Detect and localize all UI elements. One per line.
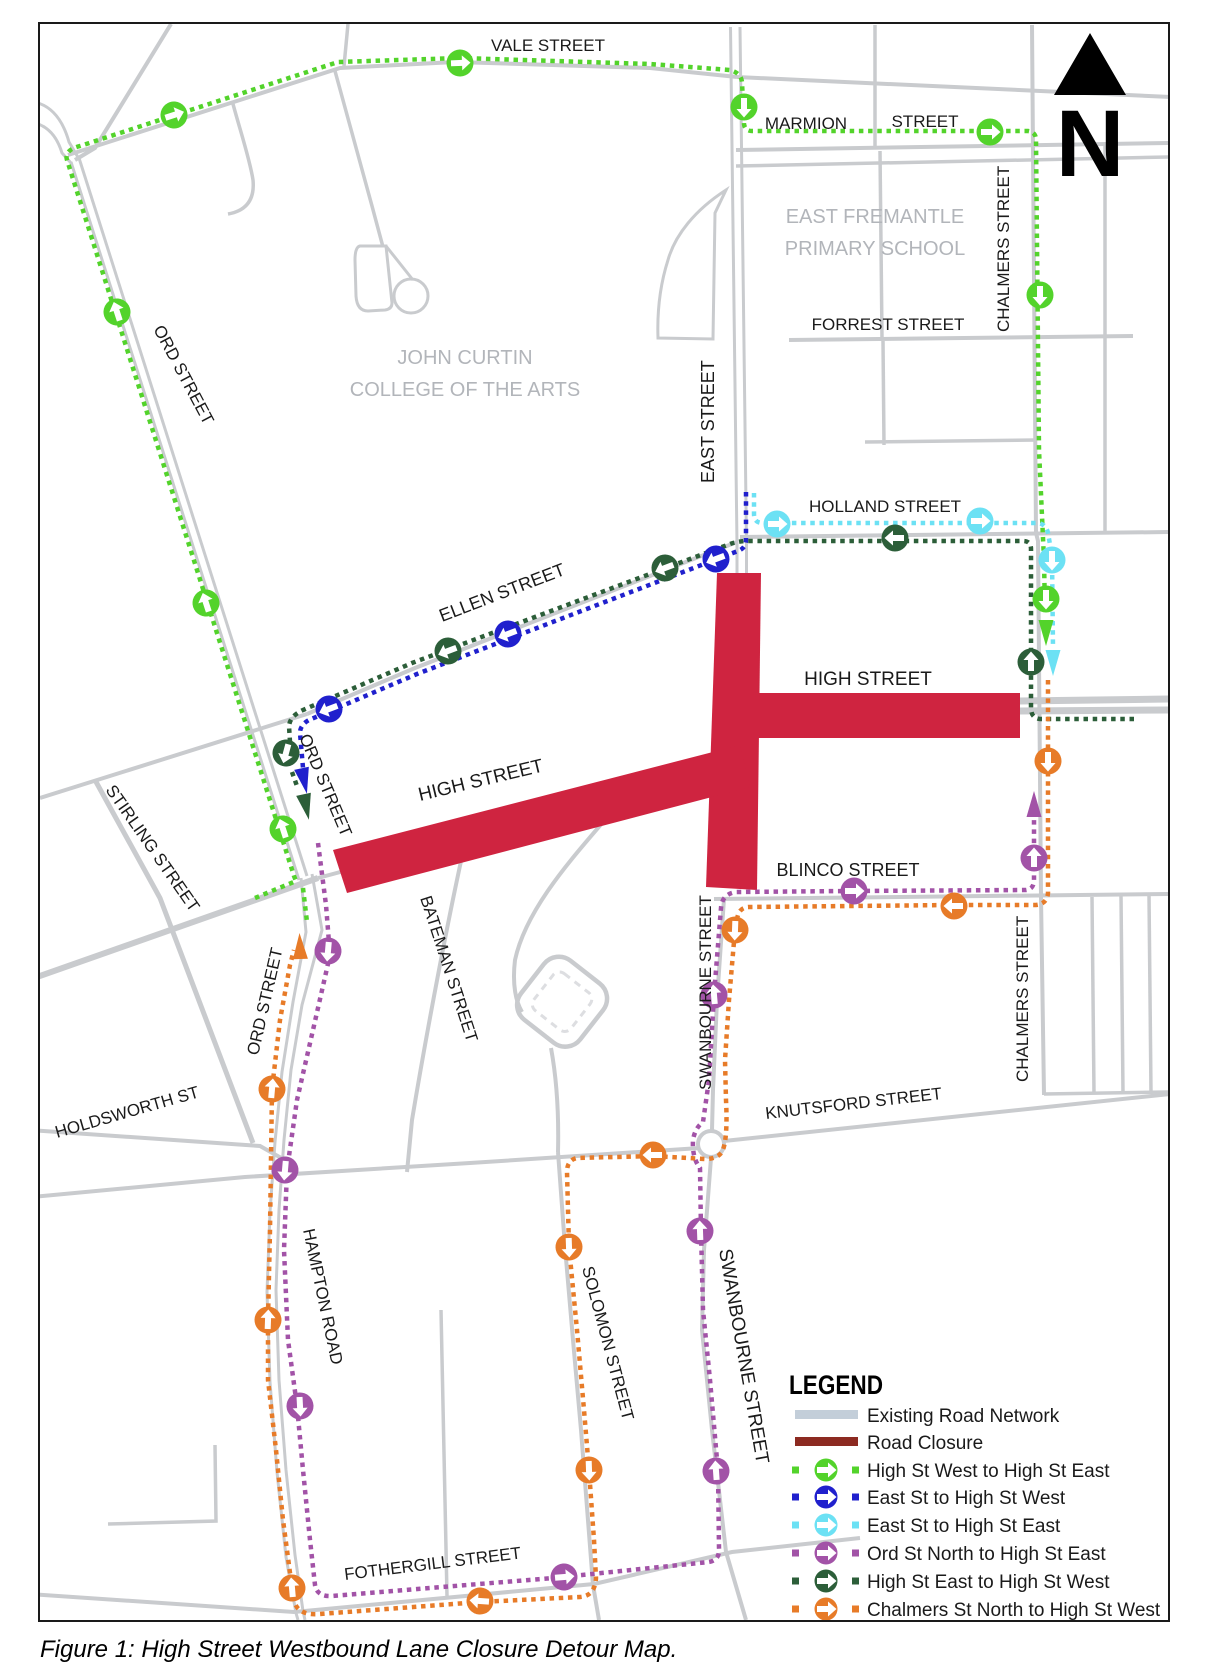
svg-text:EAST FREMANTLE: EAST FREMANTLE xyxy=(786,206,965,228)
svg-text:HIGH STREET: HIGH STREET xyxy=(804,669,932,690)
svg-text:N: N xyxy=(1056,91,1125,197)
svg-text:LEGEND: LEGEND xyxy=(789,1370,883,1400)
svg-text:Figure 1: High Street Westboun: Figure 1: High Street Westbound Lane Clo… xyxy=(40,1636,677,1663)
svg-text:High St East to High St West: High St East to High St West xyxy=(867,1572,1110,1593)
svg-text:PRIMARY SCHOOL: PRIMARY SCHOOL xyxy=(785,238,965,260)
svg-text:EAST STREET: EAST STREET xyxy=(698,360,718,483)
svg-text:SWANBOURNE STREET: SWANBOURNE STREET xyxy=(696,895,715,1090)
svg-text:Chalmers St North to High St W: Chalmers St North to High St West xyxy=(867,1600,1161,1621)
svg-text:COLLEGE OF THE ARTS: COLLEGE OF THE ARTS xyxy=(350,379,580,401)
svg-text:MARMION: MARMION xyxy=(765,114,847,133)
svg-text:Road Closure: Road Closure xyxy=(867,1433,983,1454)
svg-text:STREET: STREET xyxy=(891,112,958,131)
svg-text:JOHN CURTIN: JOHN CURTIN xyxy=(397,347,532,369)
svg-text:HOLLAND STREET: HOLLAND STREET xyxy=(809,497,961,516)
svg-text:Existing Road Network: Existing Road Network xyxy=(867,1406,1060,1427)
svg-text:High St West to High St East: High St West to High St East xyxy=(867,1461,1110,1482)
svg-text:FORREST STREET: FORREST STREET xyxy=(812,315,965,334)
svg-text:East St to High St West: East St to High St West xyxy=(867,1488,1066,1509)
svg-text:VALE STREET: VALE STREET xyxy=(491,36,605,55)
svg-text:CHALMERS STREET: CHALMERS STREET xyxy=(994,166,1013,332)
svg-text:Ord St North to High St East: Ord St North to High St East xyxy=(867,1544,1106,1565)
svg-text:East St to High St East: East St to High St East xyxy=(867,1516,1061,1537)
svg-text:CHALMERS STREET: CHALMERS STREET xyxy=(1013,916,1032,1082)
svg-text:BLINCO STREET: BLINCO STREET xyxy=(776,860,919,880)
